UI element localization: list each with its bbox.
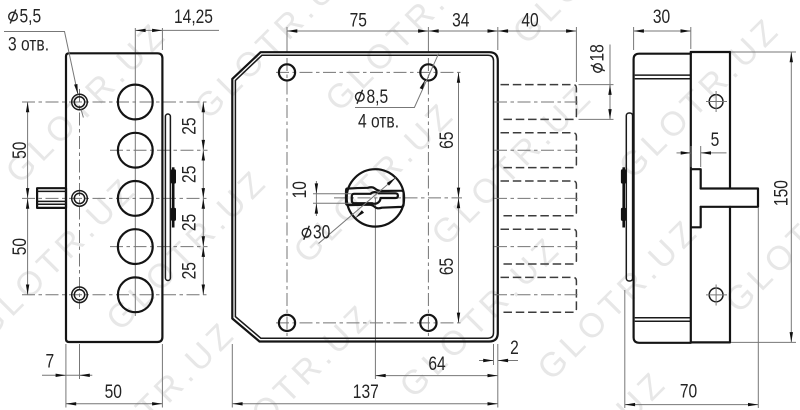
- svg-text:25: 25: [178, 214, 200, 231]
- svg-text:25: 25: [178, 117, 200, 134]
- svg-text:7: 7: [46, 350, 55, 372]
- svg-text:150: 150: [770, 180, 792, 206]
- svg-text:14,25: 14,25: [174, 6, 213, 28]
- svg-text:2: 2: [510, 337, 519, 359]
- svg-text:50: 50: [105, 381, 122, 403]
- svg-text:25: 25: [178, 166, 200, 183]
- svg-text:5,5: 5,5: [20, 5, 42, 27]
- svg-text:64: 64: [428, 353, 446, 375]
- svg-text:3 отв.: 3 отв.: [8, 33, 49, 55]
- svg-text:70: 70: [680, 380, 697, 402]
- svg-text:65: 65: [436, 132, 458, 149]
- svg-text:8,5: 8,5: [367, 86, 389, 108]
- svg-text:25: 25: [178, 262, 200, 279]
- svg-text:10: 10: [289, 181, 311, 198]
- svg-text:50: 50: [9, 238, 31, 255]
- svg-text:65: 65: [436, 258, 458, 275]
- svg-text:30: 30: [653, 6, 670, 28]
- svg-text:4 отв.: 4 отв.: [358, 110, 399, 132]
- svg-text:34: 34: [452, 9, 470, 31]
- svg-text:18: 18: [586, 44, 608, 61]
- svg-text:5: 5: [711, 129, 720, 151]
- svg-text:30: 30: [313, 221, 330, 243]
- svg-text:137: 137: [353, 381, 379, 403]
- svg-text:40: 40: [521, 9, 538, 31]
- svg-text:75: 75: [350, 9, 367, 31]
- svg-text:50: 50: [9, 142, 31, 159]
